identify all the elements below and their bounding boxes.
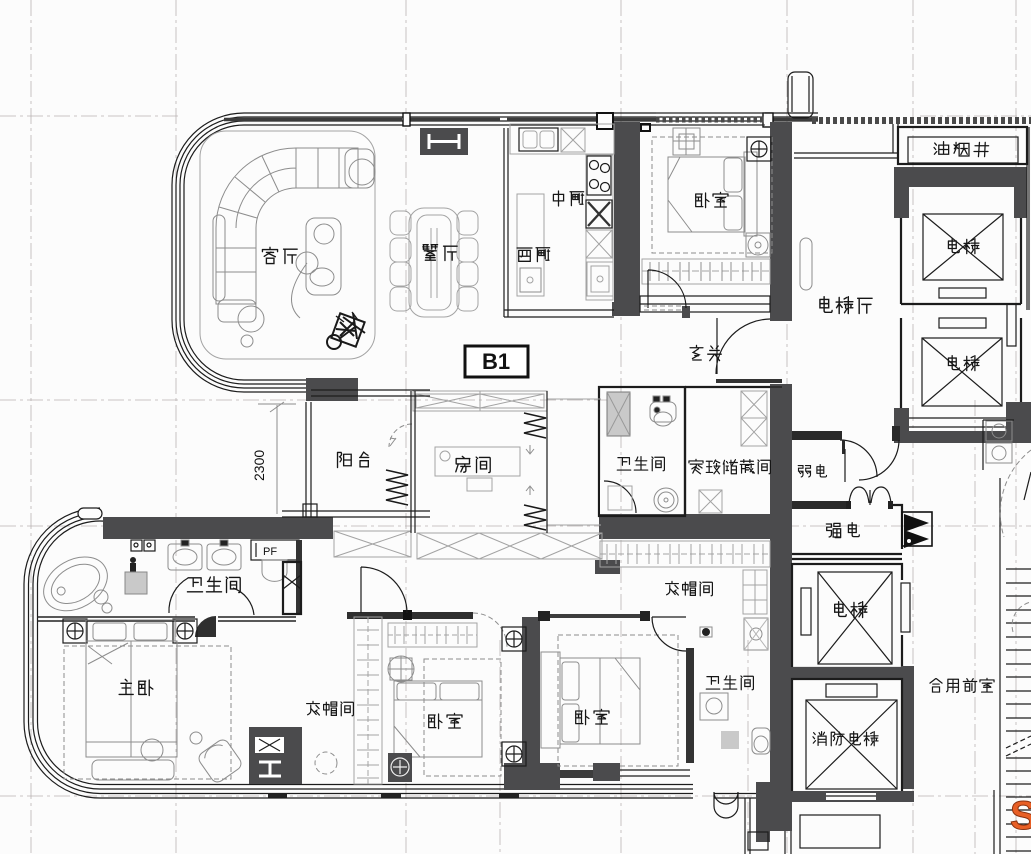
- svg-text:PF: PF: [263, 546, 277, 558]
- svg-text:B1: B1: [482, 349, 510, 374]
- svg-text:S: S: [1010, 794, 1031, 838]
- svg-text:2300: 2300: [251, 450, 267, 481]
